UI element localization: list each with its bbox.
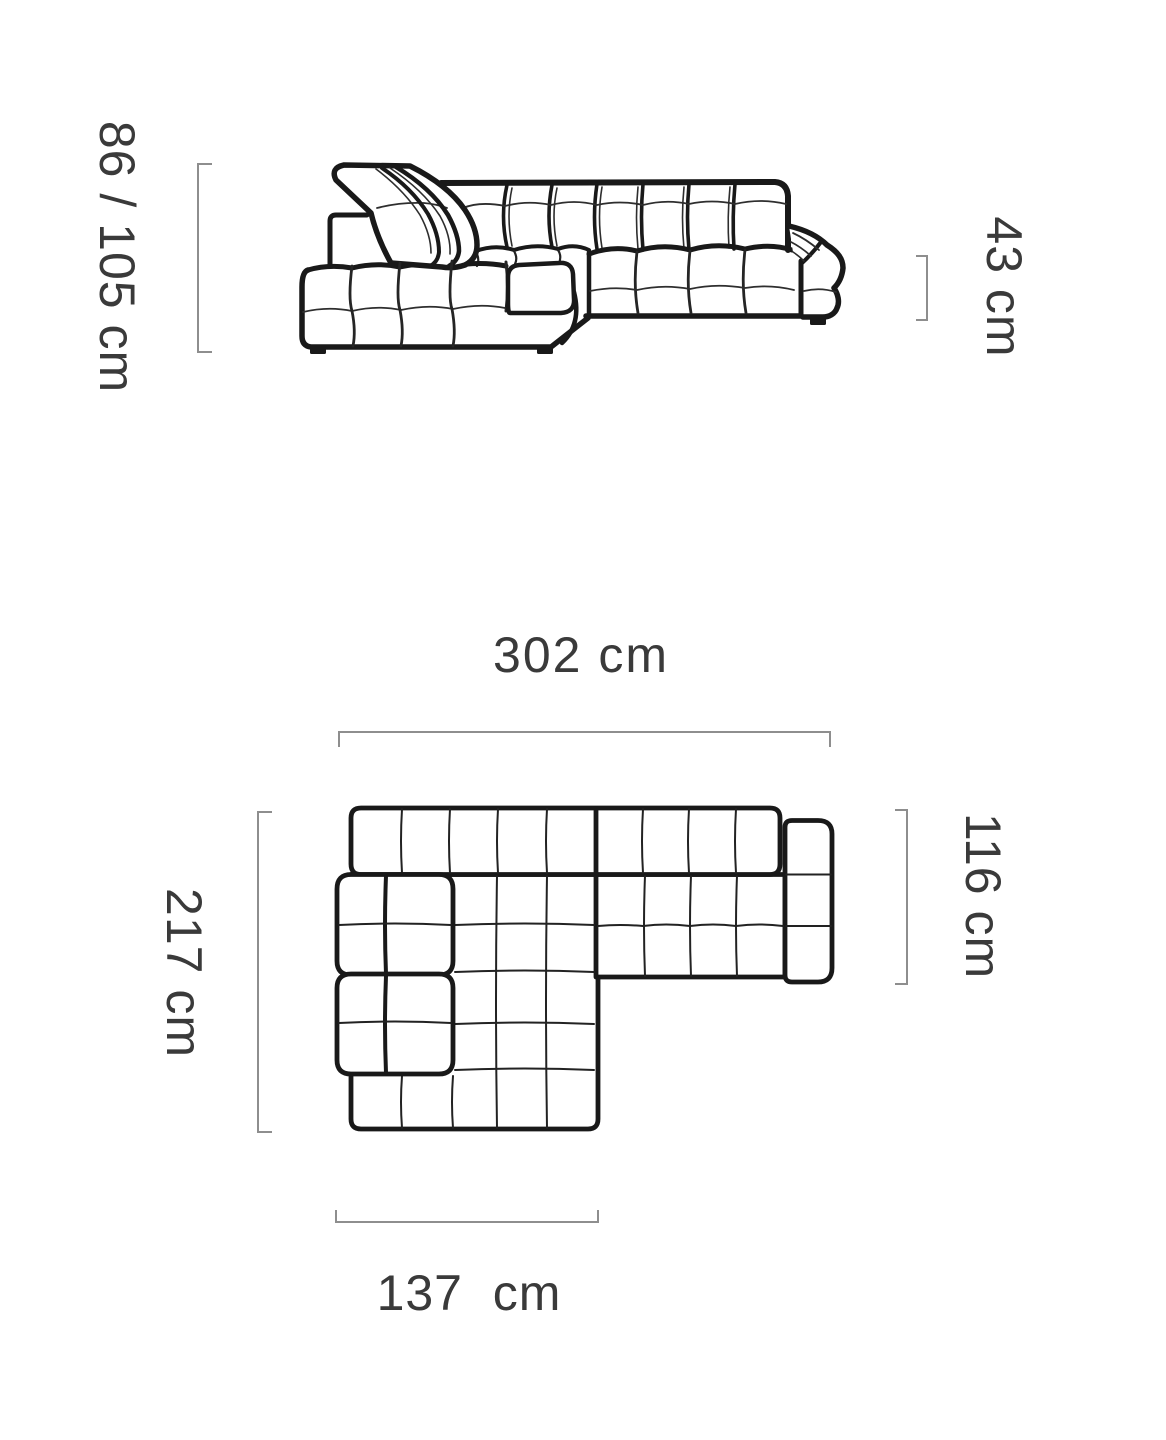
svg-text:302 cm: 302 cm — [493, 627, 669, 683]
svg-text:137 cm: 137 cm — [377, 1265, 562, 1321]
svg-text:217 cm: 217 cm — [156, 888, 212, 1058]
svg-text:116 cm: 116 cm — [955, 813, 1011, 979]
svg-text:43 cm: 43 cm — [976, 216, 1032, 357]
svg-text:86 / 105 cm: 86 / 105 cm — [89, 121, 145, 393]
